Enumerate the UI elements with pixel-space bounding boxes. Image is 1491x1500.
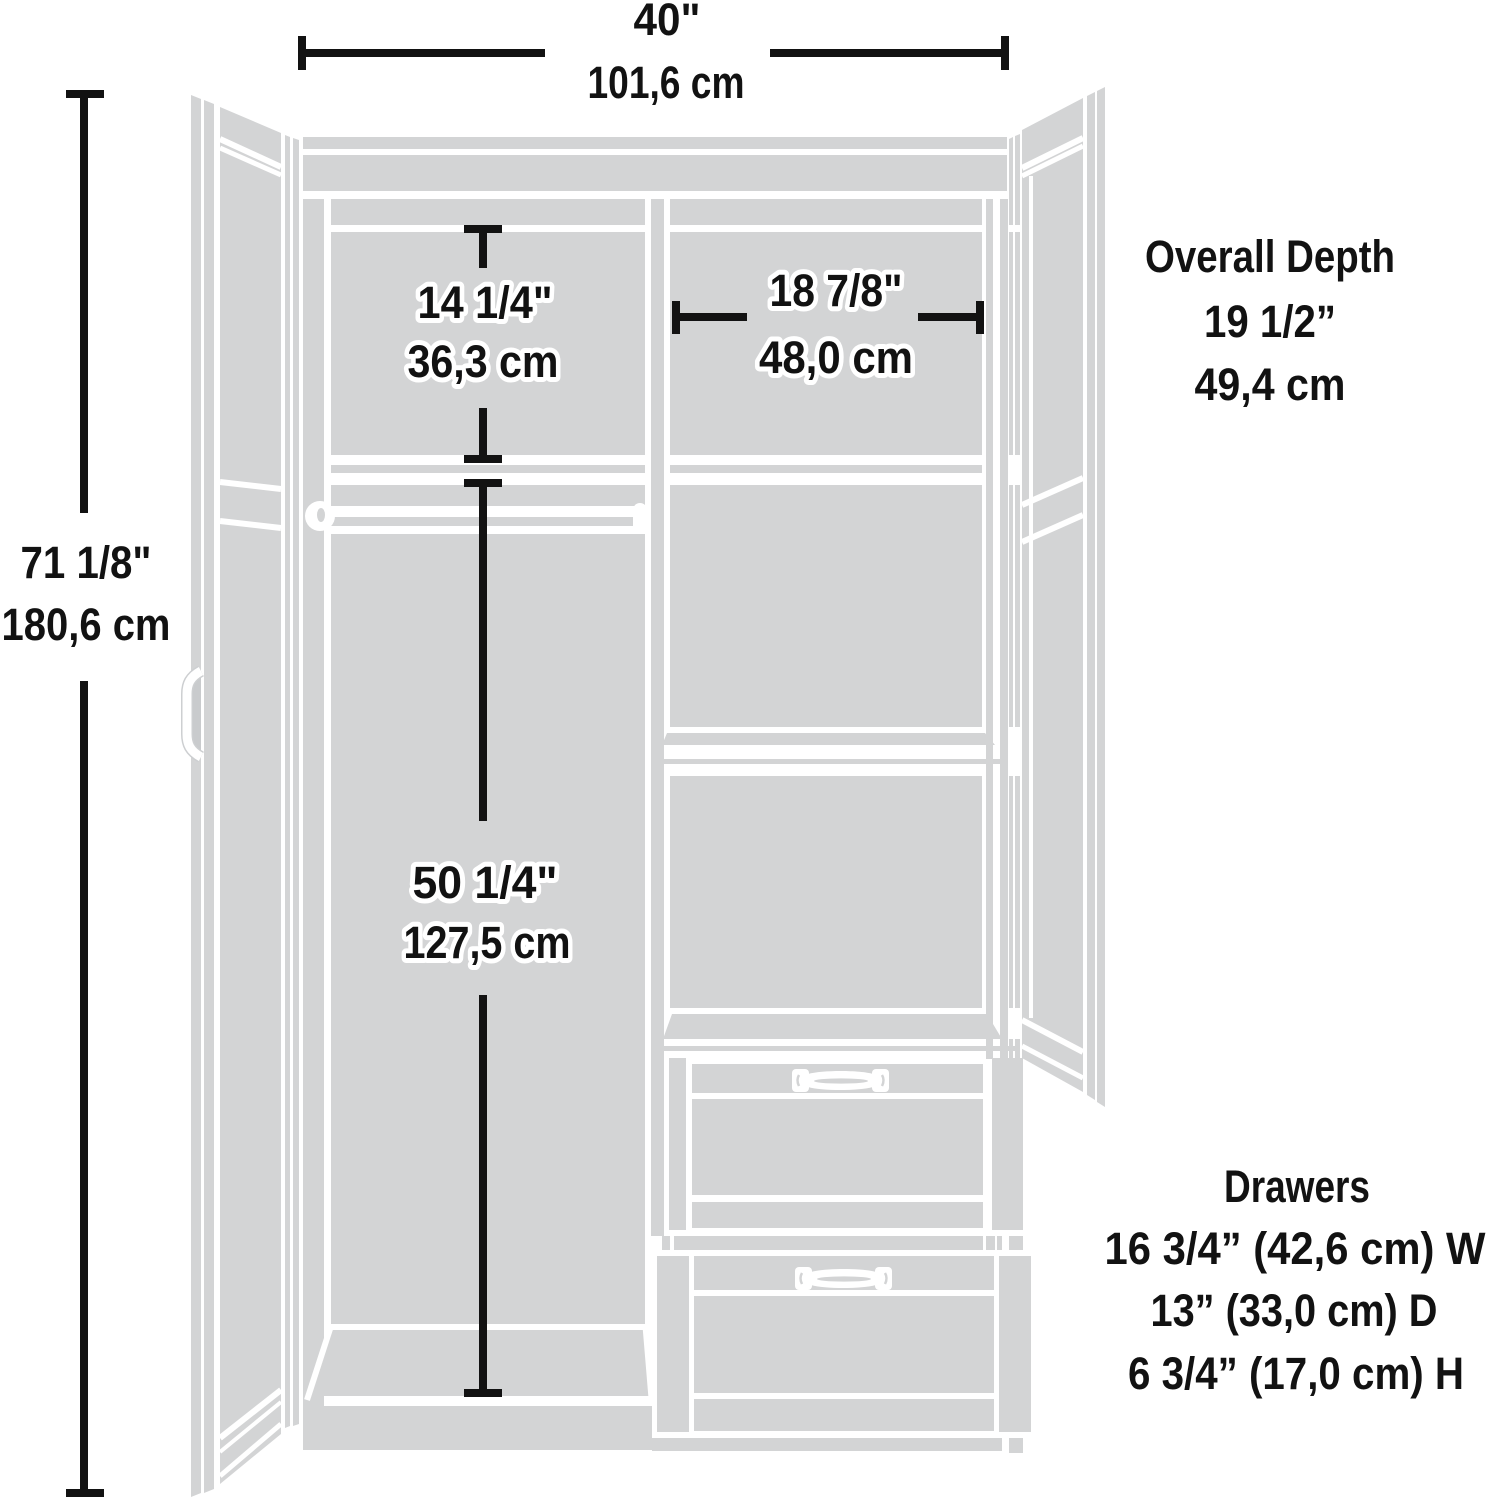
svg-text:40": 40" [634, 0, 701, 45]
svg-text:6 3/4” (17,0 cm) H: 6 3/4” (17,0 cm) H [1128, 1348, 1464, 1399]
svg-text:18 7/8": 18 7/8" [770, 265, 903, 316]
svg-text:48,0 cm: 48,0 cm [759, 332, 913, 383]
svg-text:71 1/8": 71 1/8" [21, 537, 152, 588]
svg-text:Overall Depth: Overall Depth [1145, 231, 1395, 282]
svg-text:36,3 cm: 36,3 cm [408, 336, 559, 387]
svg-text:19 1/2”: 19 1/2” [1204, 296, 1336, 347]
svg-text:14 1/4": 14 1/4" [418, 277, 553, 328]
svg-text:127,5 cm: 127,5 cm [404, 917, 571, 968]
svg-text:49,4 cm: 49,4 cm [1195, 359, 1346, 410]
svg-text:180,6 cm: 180,6 cm [2, 599, 171, 650]
svg-text:Drawers: Drawers [1224, 1161, 1370, 1212]
svg-text:13” (33,0 cm) D: 13” (33,0 cm) D [1151, 1285, 1438, 1336]
svg-text:50 1/4": 50 1/4" [413, 857, 558, 908]
svg-text:16 3/4” (42,6 cm) W: 16 3/4” (42,6 cm) W [1105, 1223, 1486, 1274]
svg-text:101,6 cm: 101,6 cm [588, 57, 745, 108]
